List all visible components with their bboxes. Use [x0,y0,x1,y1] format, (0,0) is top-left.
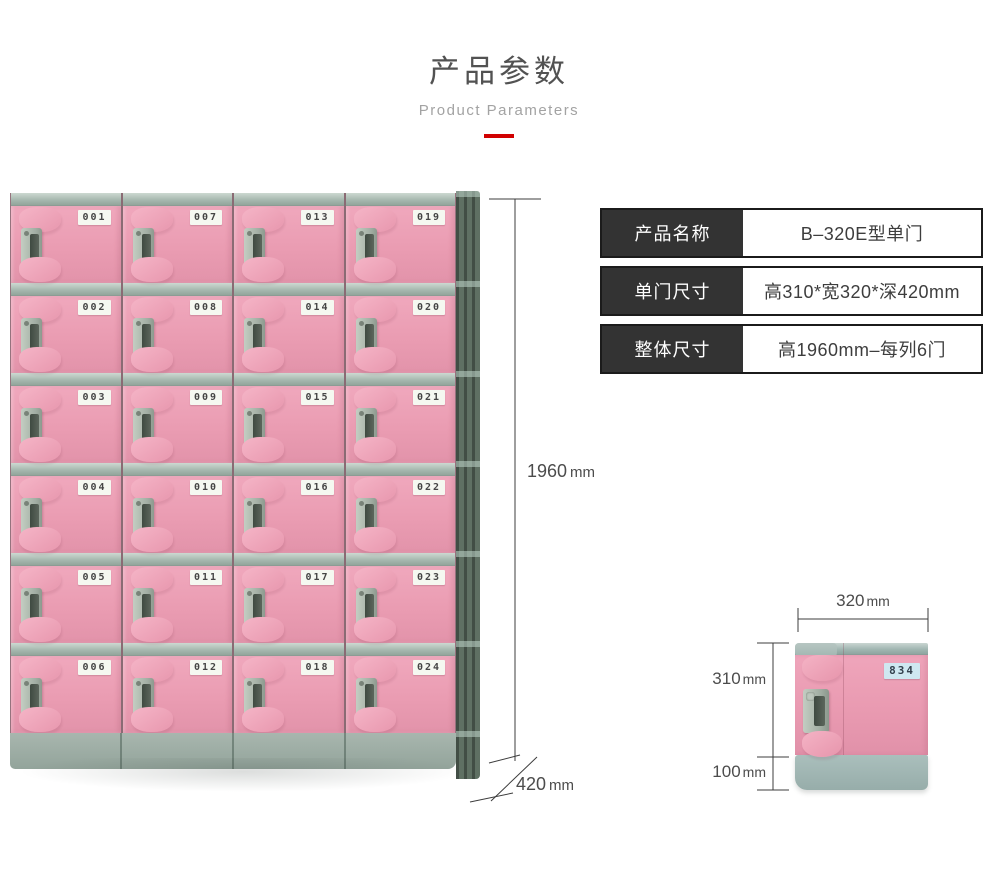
door-number-label: 023 [413,570,445,585]
locker-door: 014 [234,283,344,373]
door-molding-bottom [354,527,396,552]
door-face: 010 [123,476,233,553]
locker-door: 003 [11,373,121,463]
single-base-height-value: 100 [712,762,740,782]
door-molding-bottom [19,347,61,372]
locker-door: 002 [11,283,121,373]
door-frame-strip [123,373,233,386]
door-face: 020 [346,296,456,373]
door-number-label: 019 [413,210,445,225]
single-width-value: 320 [836,591,864,611]
door-number-label: 003 [78,390,110,405]
door-number-label: 017 [301,570,333,585]
door-face: 012 [123,656,233,733]
door-molding-bottom [242,617,284,642]
door-molding-bottom [354,257,396,282]
door-number-label: 006 [78,660,110,675]
overall-height-unit: mm [570,464,595,481]
door-face: 018 [234,656,344,733]
door-frame-strip [123,463,233,476]
spec-value: B–320E型单门 [743,210,981,256]
product-parameters-page: 产品参数 Product Parameters 001 [0,0,998,892]
door-molding-bottom [131,617,173,642]
spec-label: 产品名称 [602,210,743,256]
locker-cabinet-front: 001 002 003 [10,193,456,733]
locker-door: 022 [346,463,456,553]
door-face: 011 [123,566,233,643]
door-frame-strip [234,463,344,476]
spec-label: 整体尺寸 [602,326,743,372]
door-face: 003 [11,386,121,463]
locker-door: 011 [123,553,233,643]
door-number-label: 022 [413,480,445,495]
door-molding-bottom [19,527,61,552]
door-molding-bottom [242,707,284,732]
spec-value: 高1960mm–每列6门 [743,326,981,372]
door-number-label: 018 [301,660,333,675]
door-face: 021 [346,386,456,463]
door-frame-strip [11,373,121,386]
door-number-label: 010 [190,480,222,495]
door-frame-strip [11,283,121,296]
locker-door: 006 [11,643,121,733]
door-face: 023 [346,566,456,643]
single-height-label: 310 mm [694,669,766,689]
door-molding-bottom [19,437,61,462]
door-frame-strip [11,553,121,566]
page-title: 产品参数 [0,46,998,91]
door-face: 015 [234,386,344,463]
door-number-label: 008 [190,300,222,315]
door-number-label: 004 [78,480,110,495]
door-molding-bottom [242,347,284,372]
depth-unit: mm [549,777,574,794]
locker-door: 018 [234,643,344,733]
locker-door: 019 [346,193,456,283]
spec-table: 产品名称 B–320E型单门 单门尺寸 高310*宽320*深420mm 整体尺… [600,208,983,382]
door-molding-bottom [242,257,284,282]
door-face: 009 [123,386,233,463]
door-molding-bottom [354,617,396,642]
spec-row: 整体尺寸 高1960mm–每列6门 [600,324,983,374]
door-molding-bottom [242,527,284,552]
door-face: 007 [123,206,233,283]
locker-door: 017 [234,553,344,643]
door-face: 022 [346,476,456,553]
door-molding-bottom [131,437,173,462]
single-width-unit: mm [867,593,890,609]
door-frame-strip [123,283,233,296]
locker-door: 015 [234,373,344,463]
locker-door: 012 [123,643,233,733]
locker-door: 008 [123,283,233,373]
door-frame-strip [234,553,344,566]
door-frame-strip [123,643,233,656]
door-molding-bottom [19,257,61,282]
locker-door: 009 [123,373,233,463]
locker-door: 001 [11,193,121,283]
single-height-value: 310 [712,669,740,689]
door-molding-bottom [131,527,173,552]
door-face: 001 [11,206,121,283]
door-number-label: 016 [301,480,333,495]
spec-label: 单门尺寸 [602,268,743,314]
door-number-label: 007 [190,210,222,225]
spec-row: 单门尺寸 高310*宽320*深420mm [600,266,983,316]
overall-height-label: 1960 mm [527,461,595,482]
cabinet-shadow [18,758,468,792]
locker-door: 023 [346,553,456,643]
door-number-label: 005 [78,570,110,585]
single-height-unit: mm [743,671,766,687]
door-face: 017 [234,566,344,643]
door-frame-strip [234,643,344,656]
accent-underline [484,134,514,138]
door-number-label: 001 [78,210,110,225]
locker-door: 021 [346,373,456,463]
door-face: 024 [346,656,456,733]
locker-door: 010 [123,463,233,553]
door-frame-strip [234,373,344,386]
door-frame-strip [11,643,121,656]
door-frame-strip [346,373,456,386]
door-number-label: 011 [190,570,222,585]
door-molding-bottom [242,437,284,462]
overall-height-value: 1960 [527,461,567,482]
locker-door: 007 [123,193,233,283]
spec-row: 产品名称 B–320E型单门 [600,208,983,258]
door-molding-bottom [19,617,61,642]
locker-door: 016 [234,463,344,553]
door-face: 004 [11,476,121,553]
single-base-height-label: 100 mm [694,762,766,782]
door-face: 016 [234,476,344,553]
door-number-label: 013 [301,210,333,225]
door-frame-strip [123,193,233,206]
door-frame-strip [11,463,121,476]
cabinet-dimension-lines [460,190,600,815]
locker-door: 004 [11,463,121,553]
door-molding-bottom [354,437,396,462]
door-number-label: 014 [301,300,333,315]
door-frame-strip [346,643,456,656]
door-number-label: 024 [413,660,445,675]
door-face: 013 [234,206,344,283]
depth-value: 420 [516,774,546,795]
locker-door: 013 [234,193,344,283]
door-face: 006 [11,656,121,733]
door-frame-strip [346,283,456,296]
door-face: 005 [11,566,121,643]
single-base-height-unit: mm [743,764,766,780]
door-face: 019 [346,206,456,283]
door-face: 002 [11,296,121,373]
door-frame-strip [234,193,344,206]
door-frame-strip [346,553,456,566]
door-frame-strip [11,193,121,206]
door-number-label: 015 [301,390,333,405]
locker-door: 024 [346,643,456,733]
spec-value: 高310*宽320*深420mm [743,268,981,314]
door-frame-strip [346,463,456,476]
door-frame-strip [123,553,233,566]
door-number-label: 021 [413,390,445,405]
page-subtitle: Product Parameters [0,102,998,119]
single-width-label: 320 mm [798,591,928,611]
depth-label: 420 mm [516,774,574,795]
door-frame-strip [234,283,344,296]
door-molding-bottom [354,347,396,372]
door-number-label: 012 [190,660,222,675]
door-molding-bottom [131,707,173,732]
locker-door: 020 [346,283,456,373]
locker-door: 005 [11,553,121,643]
door-number-label: 009 [190,390,222,405]
door-face: 014 [234,296,344,373]
door-molding-bottom [354,707,396,732]
door-molding-bottom [131,347,173,372]
door-number-label: 020 [413,300,445,315]
door-face: 008 [123,296,233,373]
section-header: 产品参数 Product Parameters [0,46,998,138]
door-molding-bottom [131,257,173,282]
door-molding-bottom [19,707,61,732]
door-frame-strip [346,193,456,206]
door-number-label: 002 [78,300,110,315]
